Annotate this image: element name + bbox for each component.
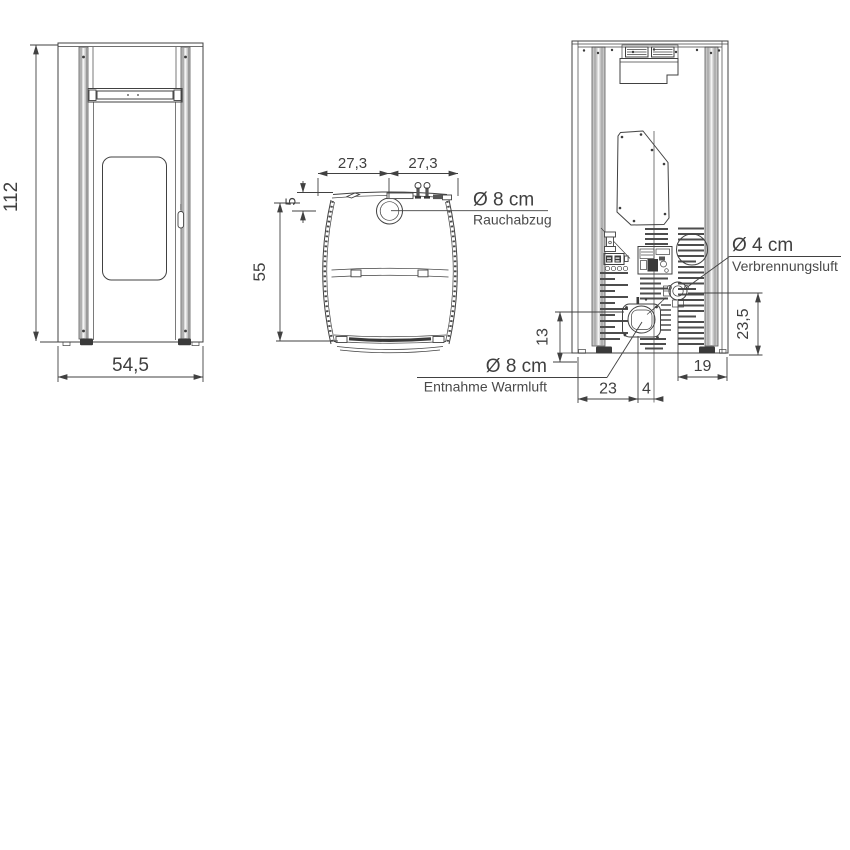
stove-dimension-drawing: 112 54,5 <box>0 0 850 850</box>
front-height-dim: 112 <box>1 182 22 212</box>
rear-center-box <box>638 247 672 275</box>
technical-drawing-page: 112 54,5 <box>0 0 850 850</box>
rear-view-dimensions: 13 23 4 19 23,5 Ø 4 cm Verbrennungsluft <box>417 235 841 403</box>
front-right-foot <box>178 339 191 346</box>
rear-access-panel <box>617 131 669 225</box>
warm-air-offset-left-dim: 23 <box>599 381 617 398</box>
top-depth-dim: 55 <box>250 263 269 282</box>
combustion-height-dim: 23,5 <box>735 308 752 339</box>
top-cable-glands <box>415 183 452 200</box>
front-left-foot <box>80 339 93 346</box>
warm-air-offset-center-dim: 4 <box>642 381 651 398</box>
top-offset-right-dim: 27,3 <box>408 155 437 172</box>
warm-air-height-dim: 13 <box>535 328 552 346</box>
top-flue-inset-dim: 5 <box>283 197 300 205</box>
flue-name-label: Rauchabzug <box>473 212 552 228</box>
top-offset-left-dim: 27,3 <box>338 155 367 172</box>
top-view: 27,3 27,3 5 55 Ø 8 cm Rauchabzug <box>250 155 552 353</box>
front-view-linework <box>40 43 203 346</box>
top-view-dimensions: 27,3 27,3 5 55 Ø 8 cm Rauchabzug <box>250 155 552 341</box>
rear-fan-vent <box>620 45 678 84</box>
warm-air-name-label: Entnahme Warmluft <box>424 379 547 395</box>
rear-electronics <box>601 228 630 271</box>
rear-view-linework <box>563 41 728 403</box>
combustion-air-name-label: Verbrennungsluft <box>732 258 838 274</box>
warm-air-outlet <box>623 297 661 339</box>
rear-right-foot <box>699 347 715 354</box>
combustion-air-diameter-label: Ø 4 cm <box>732 235 793 256</box>
front-door-window <box>103 157 167 280</box>
flue-diameter-label: Ø 8 cm <box>473 190 534 211</box>
warm-air-diameter-label: Ø 8 cm <box>486 356 547 377</box>
rear-left-foot <box>596 347 612 354</box>
front-air-grille <box>88 89 182 103</box>
top-junction-plate <box>387 193 413 199</box>
combustion-offset-dim: 19 <box>694 358 712 375</box>
top-view-linework <box>323 183 458 353</box>
front-view: 112 54,5 <box>1 43 203 382</box>
front-width-dim: 54,5 <box>112 355 149 376</box>
